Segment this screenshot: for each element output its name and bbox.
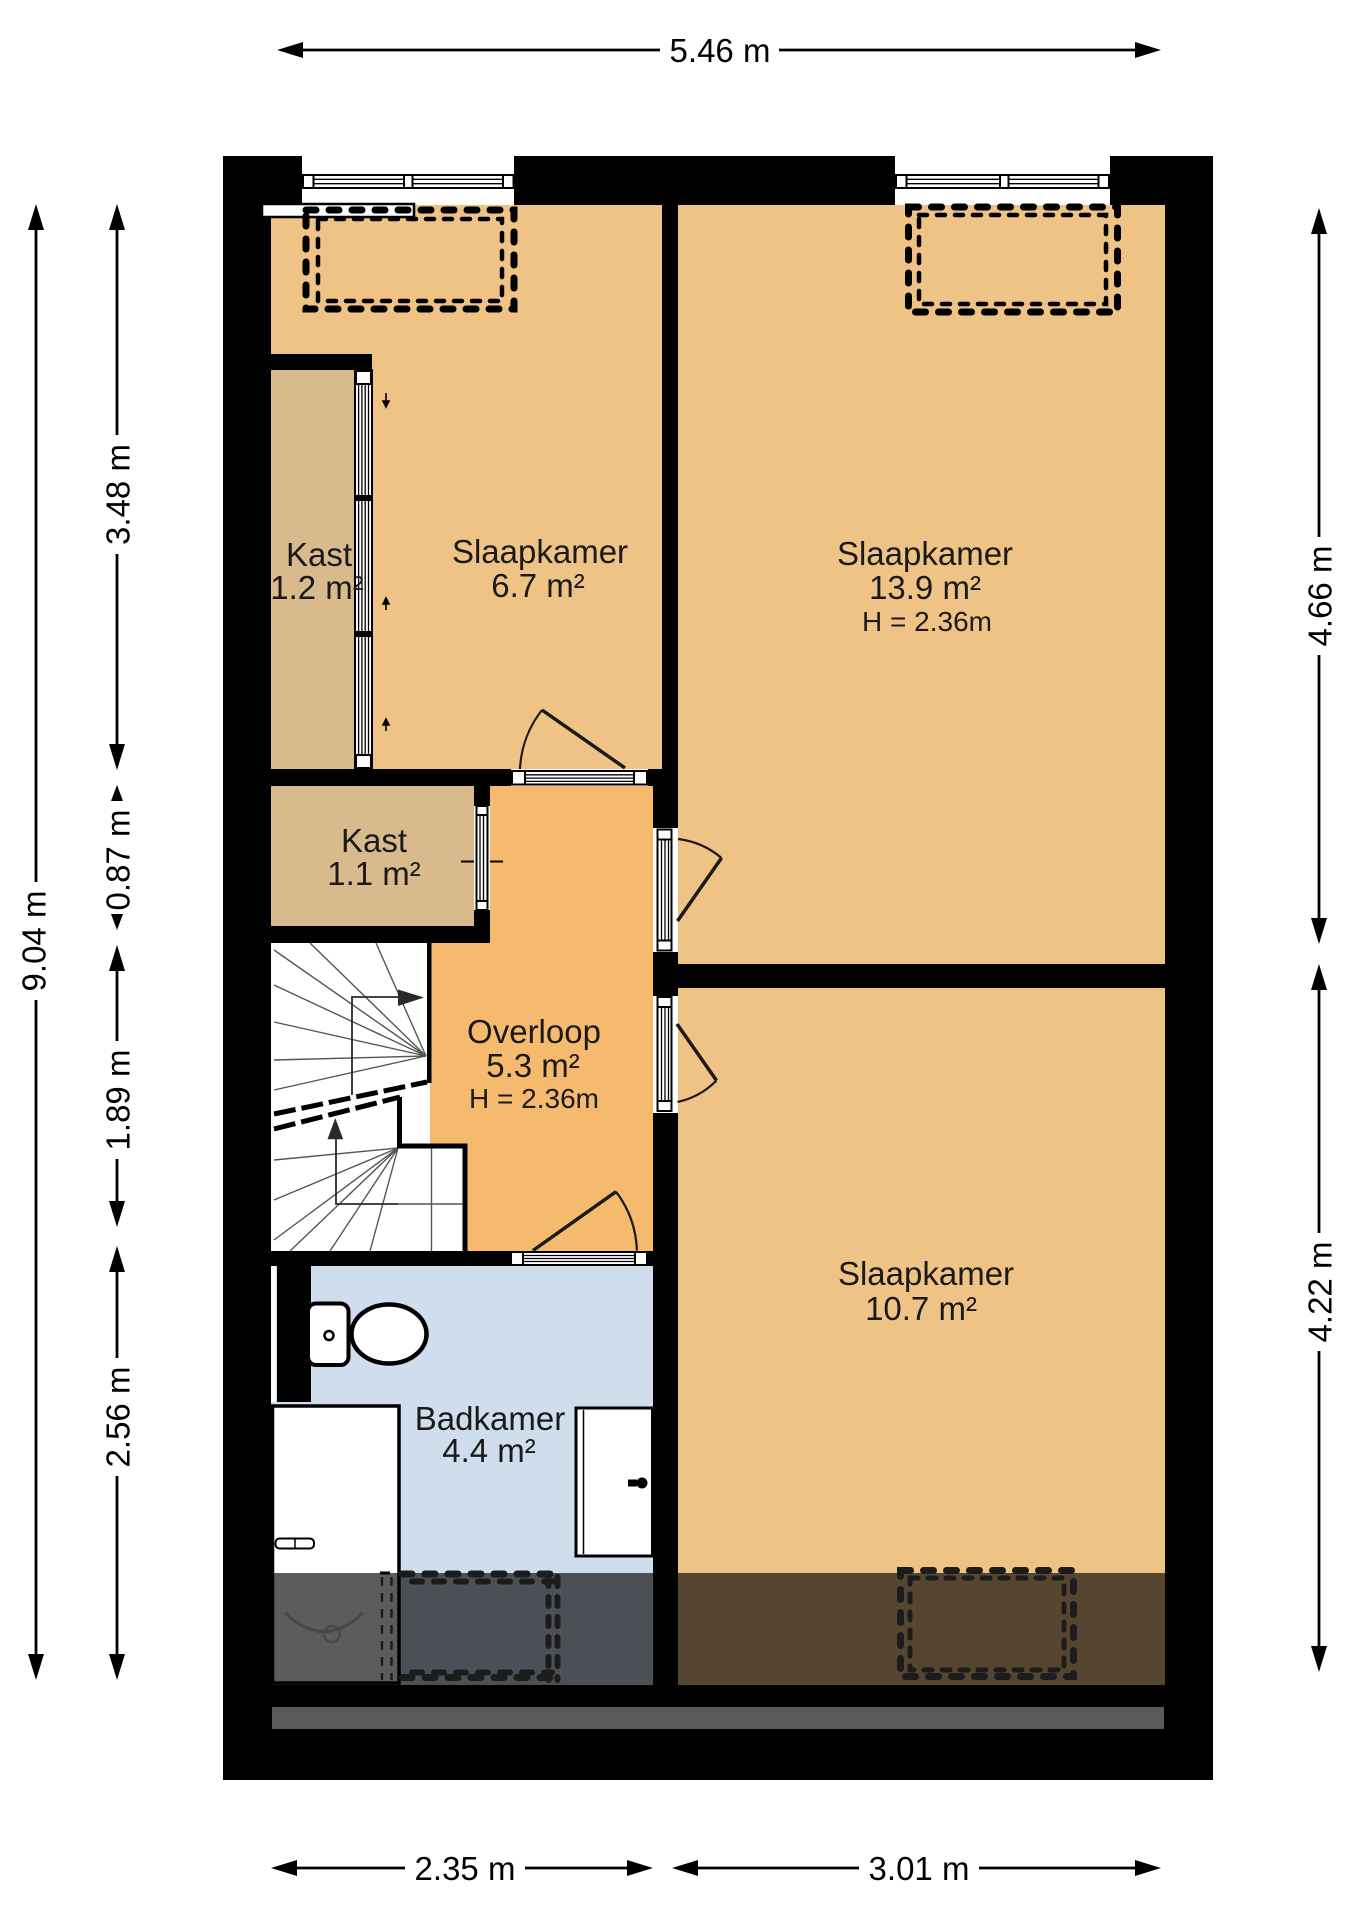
svg-text:0.87 m: 0.87 m bbox=[100, 810, 137, 911]
svg-text:Slaapkamer: Slaapkamer bbox=[837, 535, 1013, 572]
svg-text:1.1 m²: 1.1 m² bbox=[327, 855, 421, 892]
svg-text:5.46 m: 5.46 m bbox=[670, 32, 771, 69]
svg-text:Kast: Kast bbox=[286, 536, 352, 573]
svg-text:Slaapkamer: Slaapkamer bbox=[838, 1255, 1014, 1292]
svg-text:10.7 m²: 10.7 m² bbox=[865, 1290, 977, 1327]
svg-text:Slaapkamer: Slaapkamer bbox=[452, 533, 628, 570]
svg-text:H = 2.36m: H = 2.36m bbox=[862, 606, 992, 637]
svg-text:Kast: Kast bbox=[341, 822, 407, 859]
svg-text:4.66 m: 4.66 m bbox=[1302, 546, 1339, 647]
svg-text:4.4 m²: 4.4 m² bbox=[442, 1432, 536, 1469]
svg-text:9.04 m: 9.04 m bbox=[16, 891, 53, 992]
svg-text:13.9 m²: 13.9 m² bbox=[869, 569, 981, 606]
svg-text:4.22 m: 4.22 m bbox=[1302, 1242, 1339, 1343]
svg-text:3.48 m: 3.48 m bbox=[100, 444, 137, 545]
svg-text:6.7 m²: 6.7 m² bbox=[491, 567, 585, 604]
svg-text:2.35 m: 2.35 m bbox=[415, 1850, 516, 1887]
svg-text:5.3 m²: 5.3 m² bbox=[486, 1047, 580, 1084]
svg-text:1.89 m: 1.89 m bbox=[100, 1050, 137, 1151]
svg-text:3.01 m: 3.01 m bbox=[869, 1850, 970, 1887]
svg-text:2.56 m: 2.56 m bbox=[100, 1367, 137, 1468]
svg-text:H = 2.36m: H = 2.36m bbox=[469, 1083, 599, 1114]
svg-text:Overloop: Overloop bbox=[467, 1013, 601, 1050]
svg-text:1.2 m²: 1.2 m² bbox=[270, 569, 364, 606]
